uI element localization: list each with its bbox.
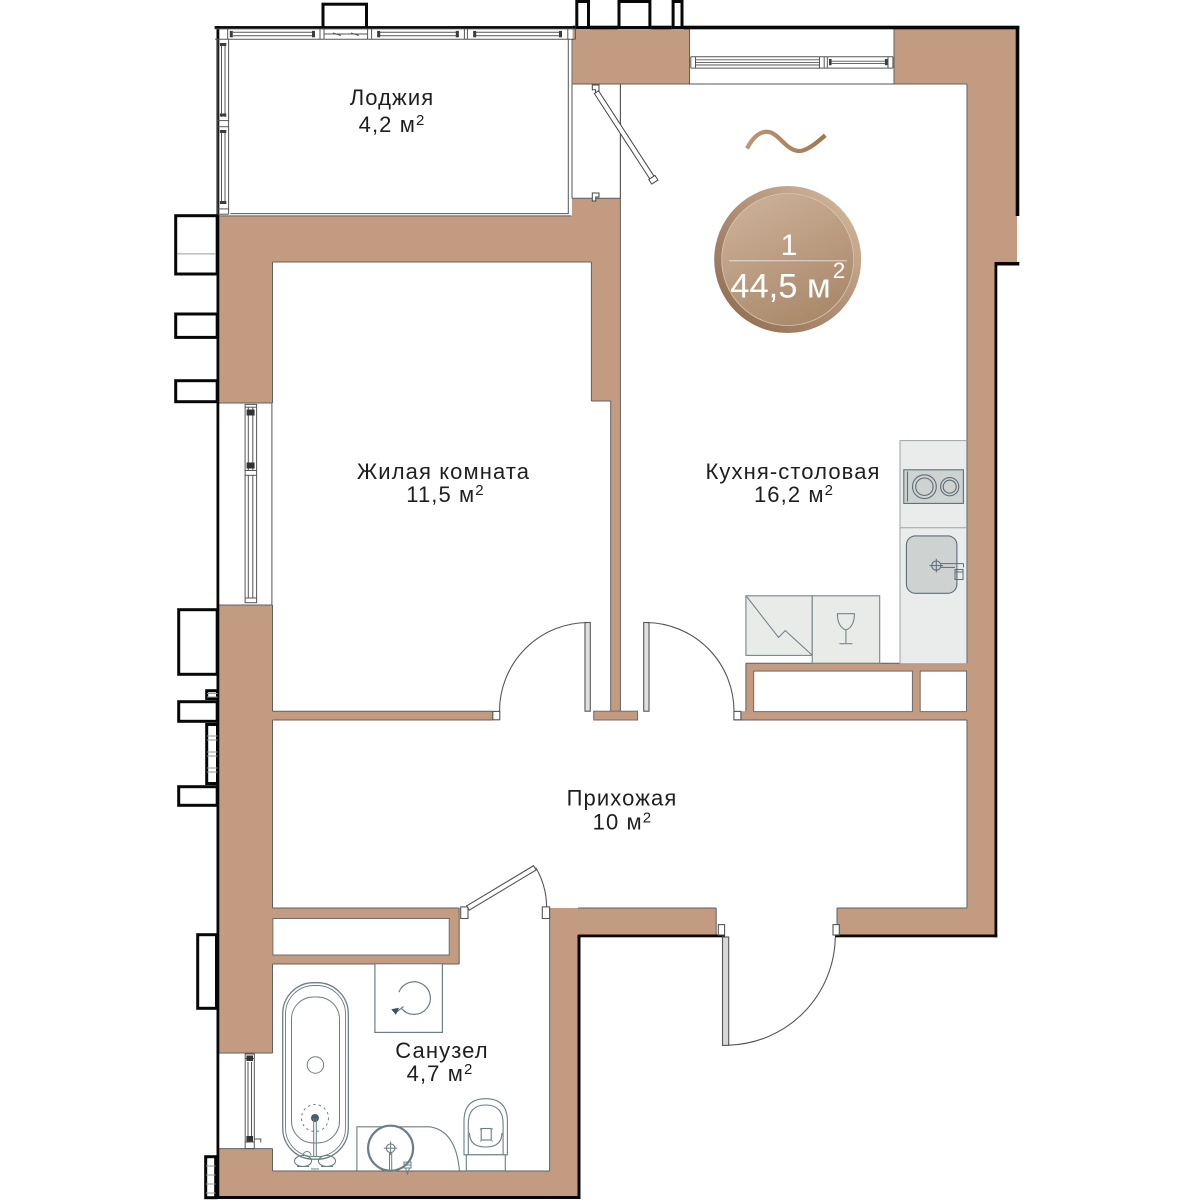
svg-text:44,5 м: 44,5 м bbox=[730, 268, 830, 306]
svg-text:Жилая комната: Жилая комната bbox=[357, 459, 530, 484]
svg-text:16,2 м2: 16,2 м2 bbox=[754, 482, 834, 507]
svg-text:4,2 м2: 4,2 м2 bbox=[359, 112, 426, 137]
svg-text:11,5 м2: 11,5 м2 bbox=[406, 482, 484, 507]
svg-text:4,7 м2: 4,7 м2 bbox=[407, 1061, 474, 1086]
svg-text:Прихожая: Прихожая bbox=[567, 786, 678, 811]
svg-text:2: 2 bbox=[833, 258, 846, 283]
svg-text:Кухня-столовая: Кухня-столовая bbox=[705, 459, 880, 484]
svg-text:Санузел: Санузел bbox=[395, 1038, 488, 1063]
svg-text:Лоджия: Лоджия bbox=[350, 85, 435, 110]
svg-text:1: 1 bbox=[781, 229, 798, 262]
